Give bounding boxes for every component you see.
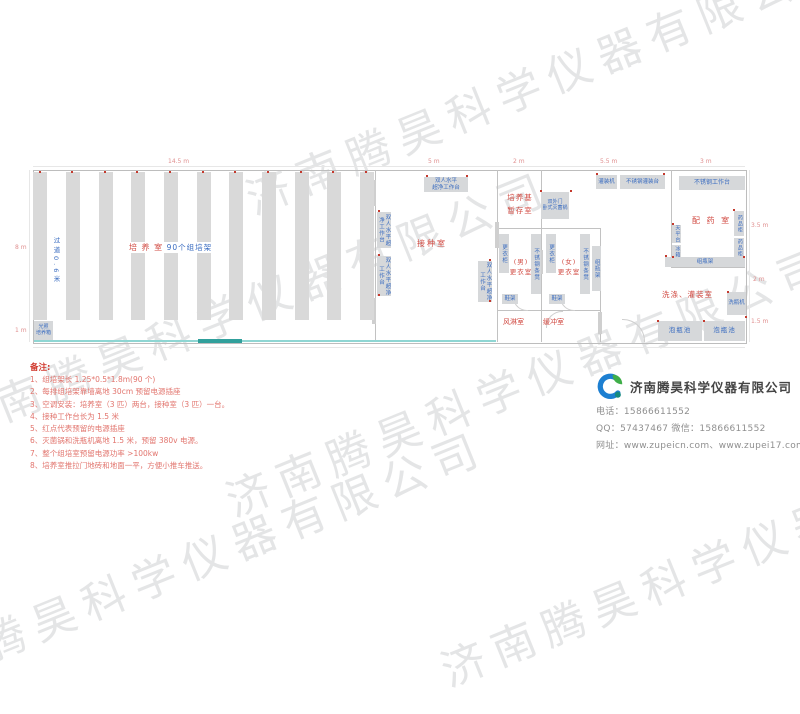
company-name: 济南腾昊科学仪器有限公司 bbox=[630, 377, 792, 396]
dim-top-pharmacy: 3 m bbox=[700, 158, 712, 165]
inoculation-room-label: 接种室 bbox=[417, 238, 447, 249]
note-item-2: 2、每排组培架靠墙离地 30cm 预留电源插座 bbox=[30, 388, 360, 396]
dim-top-middle: 5.5 m bbox=[600, 158, 617, 165]
dimension-line-top bbox=[33, 166, 745, 167]
clean-bench-left-2: 双人水平超净工作台 bbox=[377, 256, 391, 296]
power-outlet-dot bbox=[489, 300, 491, 302]
female-line1: (女) bbox=[556, 258, 582, 268]
clean-bench-left-1: 双人水平超净工作台 bbox=[377, 212, 391, 248]
dim-right-pharmacy: 3.5 m bbox=[751, 222, 768, 229]
washing-room-label: 洗涤、灌装室 bbox=[662, 289, 713, 300]
culture-rack bbox=[360, 172, 374, 320]
medium-room-label: 培养基 暂存室 bbox=[501, 192, 539, 218]
power-outlet-dot bbox=[733, 209, 735, 211]
power-outlet-dot bbox=[743, 256, 745, 258]
air-shower-label: 风淋室 bbox=[503, 317, 524, 327]
power-outlet-dot bbox=[672, 223, 674, 225]
power-outlet-dot bbox=[540, 190, 542, 192]
wall-changing-top bbox=[497, 228, 600, 229]
power-outlet-dot bbox=[672, 256, 674, 258]
medium-room-line2: 暂存室 bbox=[501, 205, 539, 218]
power-outlet-dot bbox=[104, 171, 106, 173]
dimension-line-right bbox=[749, 170, 750, 342]
power-outlet-dot bbox=[378, 294, 380, 296]
front-glass-wall bbox=[34, 340, 496, 342]
notes-title: 备注: bbox=[30, 361, 360, 373]
company-block: 济南腾昊科学仪器有限公司 电话：15866611552 QQ：57437467 … bbox=[596, 372, 800, 451]
company-qq-wechat: QQ：57437467 微信：15866611552 bbox=[596, 421, 800, 434]
dim-top-culture: 14.5 m bbox=[168, 158, 189, 165]
note-item-8: 8、培养室推拉门地砖和地面一平，方便小推车推送。 bbox=[30, 462, 360, 470]
dim-right-washing: 2 m bbox=[753, 276, 765, 283]
note-item-7: 7、整个组培室预留电源功率 >100kw bbox=[30, 450, 360, 458]
male-line2: 更衣室 bbox=[508, 268, 534, 278]
power-outlet-dot bbox=[663, 173, 665, 175]
power-outlet-dot bbox=[489, 259, 491, 261]
male-changing-label: (男) 更衣室 bbox=[508, 258, 534, 278]
medicine-cabinet-1: 药品柜 bbox=[734, 211, 744, 236]
culture-rack bbox=[229, 172, 243, 320]
clean-bench-right: 双人水平超净工作台 bbox=[478, 261, 492, 302]
shoe-rack-female: 鞋架 bbox=[549, 294, 565, 304]
female-changing-label: (女) 更衣室 bbox=[556, 258, 582, 278]
power-outlet-dot bbox=[596, 173, 598, 175]
power-outlet-dot bbox=[657, 320, 659, 322]
buffer-room-label: 缓冲室 bbox=[543, 317, 564, 327]
soaking-pool-2: 泡瓶池 bbox=[704, 321, 745, 341]
note-item-1: 1、组培架长 1.25*0.5*1.8m(90 个) bbox=[30, 376, 360, 384]
power-outlet-dot bbox=[378, 254, 380, 256]
soaking-pool-1: 泡瓶池 bbox=[658, 321, 702, 341]
power-outlet-dot bbox=[665, 255, 667, 257]
culture-rack bbox=[66, 172, 80, 320]
culture-rack bbox=[262, 172, 276, 320]
dim-left-main: 8 m bbox=[15, 244, 27, 251]
light-incubator-line2: 培养箱 bbox=[36, 331, 51, 337]
shoe-rack-male: 鞋架 bbox=[502, 294, 518, 304]
company-phone: 电话：15866611552 bbox=[596, 404, 800, 417]
power-outlet-dot bbox=[703, 320, 705, 322]
power-outlet-dot bbox=[39, 171, 41, 173]
bottle-rack-vertical: 组瓶架 bbox=[592, 246, 601, 291]
note-item-4: 4、接种工作台长为 1.5 米 bbox=[30, 413, 360, 421]
wall-corridor-left bbox=[497, 170, 498, 342]
bottle-washer: 洗瓶机 bbox=[727, 292, 746, 315]
bottle-rack-horizontal: 组瓶架 bbox=[665, 257, 745, 267]
clean-bench-line2: 超净工作台 bbox=[432, 185, 460, 191]
power-outlet-dot bbox=[267, 171, 269, 173]
power-outlet-dot bbox=[745, 316, 747, 318]
wardrobe-female: 更衣柜 bbox=[546, 234, 556, 273]
note-item-6: 6、灭菌锅和洗瓶机离地 1.5 米，预留 380v 电源。 bbox=[30, 437, 360, 445]
pharmacy-room-label: 配 药 室 bbox=[692, 215, 731, 226]
culture-room-label: 培 养 室 90个组培架 bbox=[127, 242, 214, 253]
power-outlet-dot bbox=[71, 171, 73, 173]
male-line1: (男) bbox=[508, 258, 534, 268]
note-item-5: 5、红点代表预留的电源插座 bbox=[30, 425, 360, 433]
door bbox=[598, 312, 602, 334]
power-outlet-dot bbox=[466, 175, 468, 177]
culture-room-name: 培 养 室 bbox=[129, 243, 163, 252]
power-outlet-dot bbox=[169, 171, 171, 173]
power-outlet-dot bbox=[727, 291, 729, 293]
clean-bench-top: 双人水平 超净工作台 bbox=[424, 177, 468, 192]
power-outlet-dot bbox=[332, 171, 334, 173]
autoclave: 双外门 卧式灭菌锅 bbox=[541, 192, 569, 219]
medicine-cabinet-2: 药品柜 bbox=[734, 238, 744, 258]
culture-rack bbox=[327, 172, 341, 320]
wall-changing-bottom bbox=[497, 310, 600, 311]
dim-right-pool: 1.5 m bbox=[751, 318, 768, 325]
power-outlet-dot bbox=[365, 171, 367, 173]
filling-table: 不锈钢灌装台 bbox=[620, 175, 665, 189]
power-outlet-dot bbox=[234, 171, 236, 173]
dim-top-corridor: 2 m bbox=[513, 158, 525, 165]
filling-machine: 灌装机 bbox=[596, 175, 617, 189]
power-outlet-dot bbox=[136, 171, 138, 173]
company-website: 网址：www.zupeicn.com、www.zupei17.com bbox=[596, 438, 800, 451]
power-outlet-dot bbox=[426, 175, 428, 177]
wall-pharmacy-bottom bbox=[671, 267, 745, 268]
culture-rack bbox=[295, 172, 309, 320]
power-outlet-dot bbox=[300, 171, 302, 173]
steel-worktable: 不锈钢工作台 bbox=[679, 176, 745, 190]
dimension-line-left bbox=[29, 170, 30, 342]
note-item-3: 3、空调安装：培养室（3 匹）两台，接种室（3 匹）一台。 bbox=[30, 401, 360, 409]
dim-left-front: 1 m bbox=[15, 327, 27, 334]
light-incubator: 光照 培养箱 bbox=[34, 321, 53, 340]
dim-top-inoculation: 5 m bbox=[428, 158, 440, 165]
power-outlet-dot bbox=[570, 190, 572, 192]
autoclave-line2: 卧式灭菌锅 bbox=[542, 206, 567, 212]
power-outlet-dot bbox=[378, 210, 380, 212]
notes-section: 备注: 1、组培架长 1.25*0.5*1.8m(90 个) 2、每排组培架靠墙… bbox=[30, 361, 360, 474]
culture-rack bbox=[33, 172, 47, 320]
power-outlet-dot bbox=[202, 171, 204, 173]
culture-racks-count: 90个组培架 bbox=[167, 243, 213, 252]
aisle-label: 过道0.6米 bbox=[51, 237, 61, 301]
medium-room-line1: 培养基 bbox=[501, 192, 539, 205]
dimension-line-bottom bbox=[33, 347, 745, 348]
female-line2: 更衣室 bbox=[556, 268, 582, 278]
company-logo-icon bbox=[596, 372, 624, 400]
balance-table: 天平台 bbox=[672, 225, 681, 243]
sliding-door bbox=[198, 339, 242, 343]
culture-rack bbox=[99, 172, 113, 320]
